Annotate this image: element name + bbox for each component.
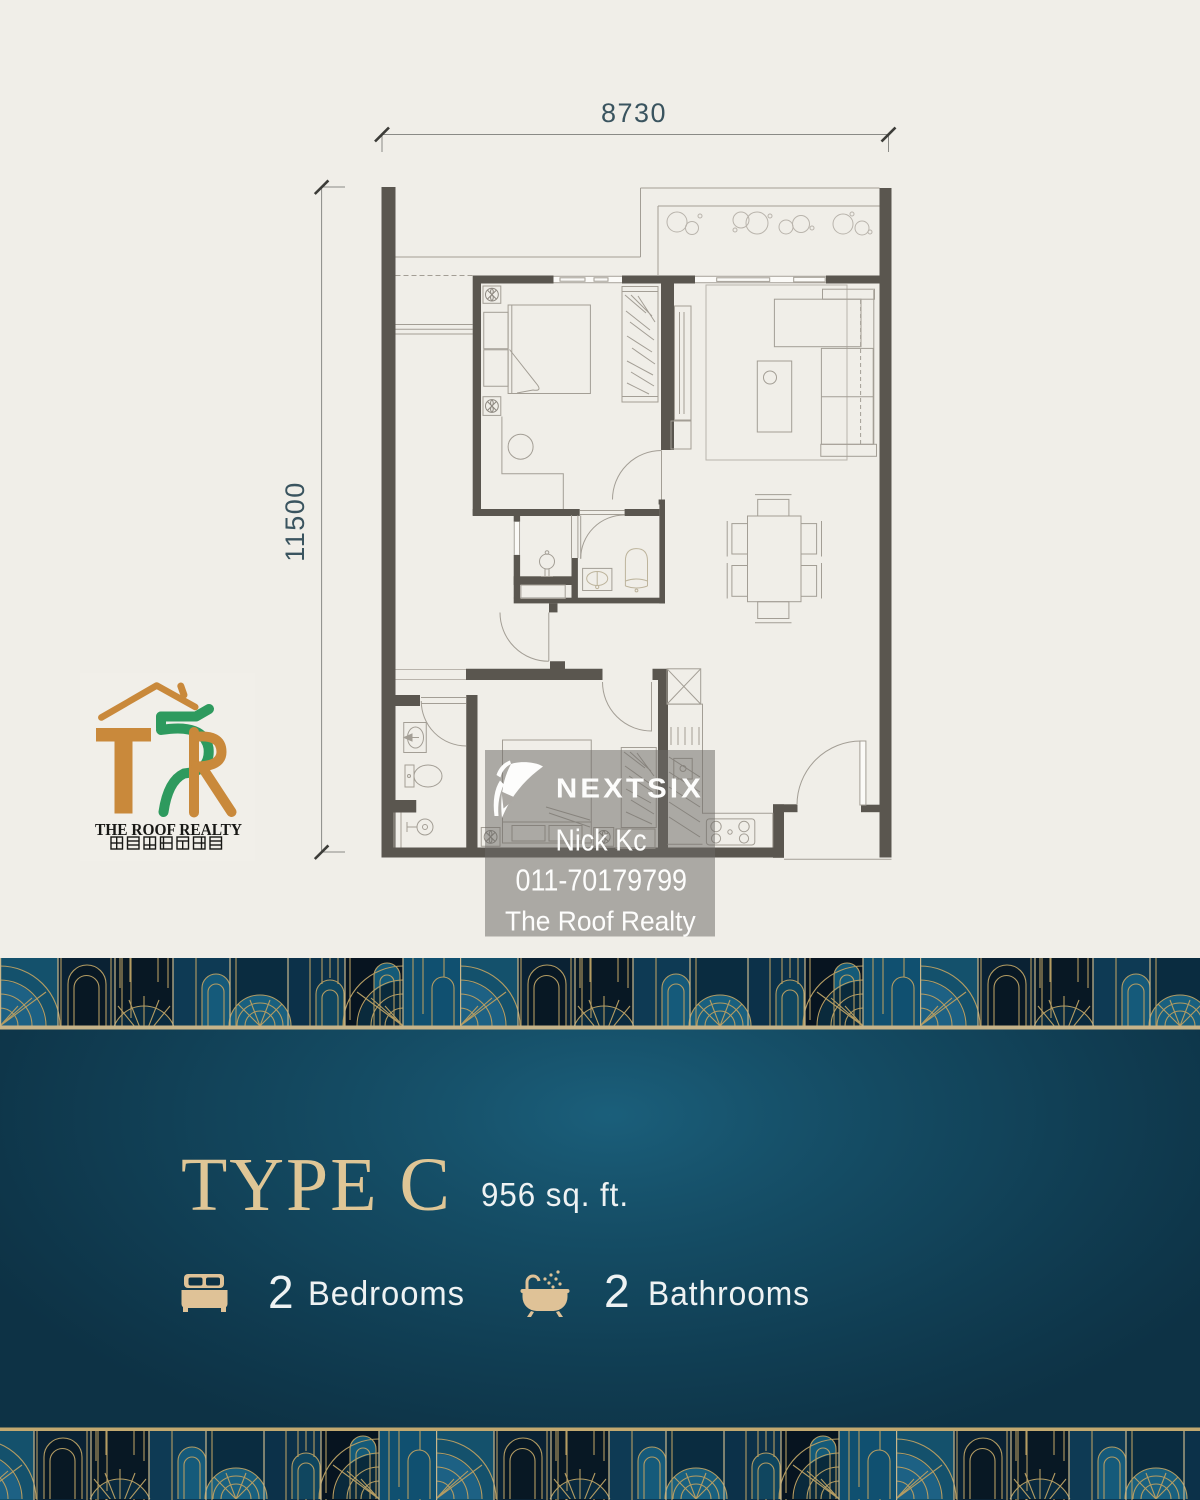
svg-text:2: 2 <box>604 1265 630 1317</box>
svg-text:TYPE C: TYPE C <box>181 1143 452 1227</box>
svg-text:THE ROOF REALTY: THE ROOF REALTY <box>95 820 242 839</box>
svg-text:The Roof Realty: The Roof Realty <box>505 906 696 937</box>
svg-text:8730: 8730 <box>601 98 667 128</box>
svg-text:011-70179799: 011-70179799 <box>516 863 688 898</box>
svg-text:Nick Kc: Nick Kc <box>556 823 647 858</box>
svg-text:NEXTSIX: NEXTSIX <box>556 773 704 804</box>
svg-text:Bathrooms: Bathrooms <box>648 1275 810 1313</box>
svg-text:956 sq. ft.: 956 sq. ft. <box>481 1176 629 1213</box>
svg-text:11500: 11500 <box>280 481 310 562</box>
svg-text:2: 2 <box>268 1266 294 1318</box>
svg-text:Bedrooms: Bedrooms <box>308 1275 465 1313</box>
